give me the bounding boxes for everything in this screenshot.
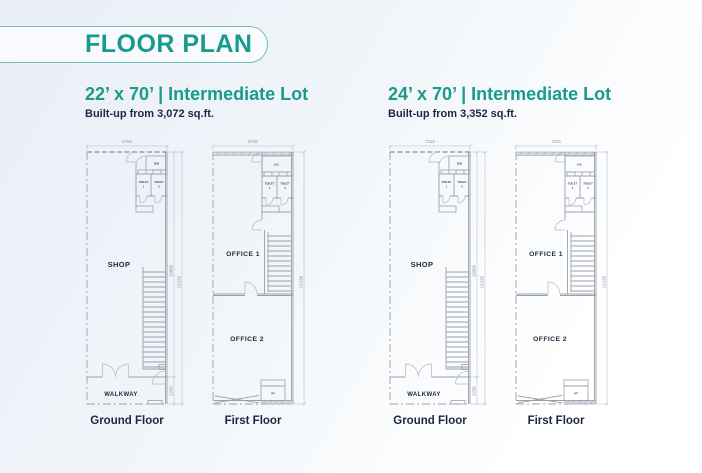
staircase [143,267,166,369]
toilet-doors [443,196,465,203]
toilet-lobby-doors [429,152,449,166]
floor-plan-banner: FLOOR PLAN [0,26,268,63]
ground-floor-figure: 7315 BIN TOILET 1 TOILET 2 [382,134,500,427]
outer-walls [390,152,470,404]
rear-door-swing [153,371,166,384]
ledge [439,206,456,212]
lot-boundary-line [87,152,167,404]
first-floor-figure: 7315 A/C TOILET 1 TOILET 2 [508,134,626,427]
toilet2-label: TOILET [457,180,467,184]
front-wall [213,152,293,156]
plan-caption: First Floor [508,415,604,427]
toilet-doors [266,198,288,205]
double-door [405,364,431,377]
page-title: FLOOR PLAN [85,30,253,59]
toilet2-label: TOILET [280,182,290,186]
bin-label: BIN [457,162,462,166]
toilet2-number: 2 [461,185,463,189]
walkway-wall-and-doors [87,364,167,377]
ledge [262,206,279,212]
width-dim-label: 6706 [248,139,258,144]
lot-title: 24’ x 70’ | Intermediate Lot [388,84,626,105]
outer-walls [213,152,293,404]
ac-box [261,380,285,401]
stair-wall [568,230,572,294]
mid-wall [213,282,293,296]
entrance-step [451,401,465,405]
walkway-dim-label: 2250 [169,386,174,396]
width-dim-label: 6706 [122,139,132,144]
shop-label: SHOP [108,260,131,269]
toilet1-label: TOILET [139,180,149,184]
sink-2 [582,172,590,176]
office-divider-door [245,282,257,294]
lot-title: 22’ x 70’ | Intermediate Lot [85,84,323,105]
office-divider-wall [213,294,293,296]
lot-boundary-line [516,152,596,404]
ac-bottom-box: a/c [261,380,285,401]
sink-2 [456,170,464,174]
ledge [565,206,582,212]
width-dim-line [515,145,598,151]
office2-label: OFFICE 2 [230,336,264,343]
toilet1-number: 1 [572,186,574,190]
walkway-label: WALKWAY [407,392,441,398]
total-dim-label: 21336 [602,275,607,288]
width-dim-line [389,145,472,151]
plan-caption: Ground Floor [382,415,478,427]
side-dimensions: 21336 [293,151,306,406]
sink-1 [441,170,449,174]
staircase [265,230,292,294]
stair-treads [268,236,292,291]
sink-2 [153,170,161,174]
ledge [136,206,153,212]
width-dimension: 6706 [86,139,169,151]
width-dimension: 7315 [389,139,472,151]
ac-bottom-box: a/c [564,380,588,401]
ac-label: A/C [577,163,582,167]
first-floor-plan: 7315 A/C TOILET 1 TOILET 2 [508,134,626,410]
width-dimension: 6706 [212,139,295,151]
toilet1-label: TOILET [442,180,452,184]
width-dim-line [86,145,169,151]
plan-caption: First Floor [205,415,301,427]
first-floor-figure: 6706 A/C TOILET 1 TOILET 2 [205,134,323,427]
toilet2-label: TOILET [583,182,593,186]
toilet2-label: TOILET [154,180,164,184]
outer-walls [87,152,167,404]
toilet2-number: 2 [587,186,589,190]
bin-label: BIN [154,162,159,166]
toilet2-number: 2 [158,185,160,189]
first-floor-drawing: 6706 A/C TOILET 1 TOILET 2 [205,134,323,410]
ramp-lines [518,396,562,403]
lot-22x70: 22’ x 70’ | Intermediate Lot Built-up fr… [79,84,323,427]
lot-24x70: 24’ x 70’ | Intermediate Lot Built-up fr… [382,84,626,427]
depth-dim-label: 19086 [169,264,174,277]
staircase [568,230,595,294]
depth-dim-label: 19086 [472,264,477,277]
plan-caption: Ground Floor [79,415,175,427]
sink-1 [567,172,575,176]
stair-wall [265,230,269,294]
walkway-wall-and-doors [390,364,470,377]
front-wall [516,152,596,156]
office-divider-wall [516,294,596,296]
toilet-walls [136,174,167,196]
office1-label: OFFICE 1 [226,251,260,258]
toilet-block: TOILET 1 TOILET 2 [555,152,596,230]
toilet-block: TOILET 1 TOILET 2 [252,152,293,230]
total-dim-label: 21336 [177,275,182,288]
ramp-lines [215,396,259,403]
width-dim-line [212,145,295,151]
party-wall [213,152,293,404]
toilet1-number: 1 [446,185,448,189]
sink-1 [264,172,272,176]
toilet1-label: TOILET [265,182,275,186]
plans-row: 7315 BIN TOILET 1 TOILET 2 [382,134,626,427]
lot-builtup: Built-up from 3,352 sq.ft. [388,108,626,120]
rear-door-swing [456,371,469,384]
lot-boundary-line [213,152,293,404]
first-floor-plan: 6706 A/C TOILET 1 TOILET 2 [205,134,323,410]
stair-treads [143,272,166,367]
side-dimensions: 19086 21336 2250 [470,151,487,406]
ground-floor-plan: 6706 BIN TOILET 1 TOILET 2 [79,134,197,410]
toilet-doors [569,198,591,205]
walkway-dim-label: 2250 [472,386,477,396]
width-dim-label: 7315 [551,139,561,144]
toilet-walls [439,174,470,196]
side-dimensions: 21336 [596,151,609,406]
office-entry-door [252,220,262,230]
office-entry-door [555,220,565,230]
mid-wall [516,282,596,296]
outer-walls [516,152,596,404]
party-wall [516,152,596,404]
ac-label: A/C [274,163,279,167]
entrance-step [148,401,162,405]
shop-label: SHOP [411,260,434,269]
stair-treads [571,236,595,291]
office1-label: OFFICE 1 [529,251,563,258]
toilet-block: BIN TOILET 1 TOILET 2 [126,152,167,212]
total-dim-label: 21336 [299,275,304,288]
toilet-lobby-doors [126,152,146,166]
toilet-block: BIN TOILET 1 TOILET 2 [429,152,470,212]
toilet-doors [140,196,162,203]
double-door [102,364,128,377]
lot-builtup: Built-up from 3,072 sq.ft. [85,108,323,120]
lots-row: 22’ x 70’ | Intermediate Lot Built-up fr… [79,84,626,427]
side-dimensions: 19086 21336 2250 [167,151,184,406]
stair-treads [446,272,469,367]
sink-2 [279,172,287,176]
toilet-walls [262,176,293,198]
ac-bottom-label: a/c [574,391,578,395]
walkway-label: WALKWAY [104,392,138,398]
ground-floor-drawing: 7315 BIN TOILET 1 TOILET 2 [382,134,500,410]
office2-label: OFFICE 2 [533,336,567,343]
plans-row: 6706 BIN TOILET 1 TOILET 2 [79,134,323,427]
toilet2-number: 2 [284,186,286,190]
toilet1-number: 1 [143,185,145,189]
sink-1 [138,170,146,174]
toilet1-number: 1 [269,186,271,190]
width-dimension: 7315 [515,139,598,151]
ground-floor-figure: 6706 BIN TOILET 1 TOILET 2 [79,134,197,427]
width-dim-label: 7315 [425,139,435,144]
ground-floor-drawing: 6706 BIN TOILET 1 TOILET 2 [79,134,197,410]
toilet-walls [565,176,596,198]
toilet1-label: TOILET [568,182,578,186]
office-divider-door [548,282,560,294]
ground-floor-plan: 7315 BIN TOILET 1 TOILET 2 [382,134,500,410]
ac-box [564,380,588,401]
first-floor-drawing: 7315 A/C TOILET 1 TOILET 2 [508,134,626,410]
staircase [446,267,469,369]
lot-boundary-line [390,152,470,404]
total-dim-label: 21336 [480,275,485,288]
ac-bottom-label: a/c [271,391,275,395]
